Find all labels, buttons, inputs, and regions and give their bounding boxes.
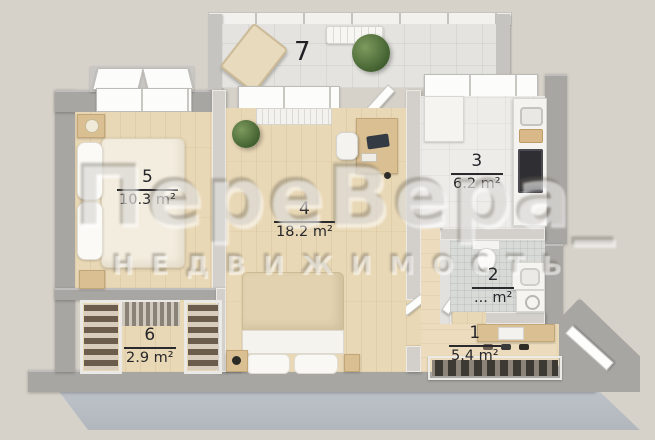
room-4-number: 4 [299,200,310,220]
corridor-floor [421,228,440,324]
monitor [366,134,390,150]
room-1-label: 1 5.4 m² [449,324,501,364]
shoes-pair [501,344,511,350]
wall-right-upper [545,74,567,244]
bed-pillow [246,354,290,374]
room-1-area: 5.4 m² [449,345,501,365]
room-4-label: 4 18.2 m² [274,200,335,240]
nightstand [79,270,105,289]
room-5-number: 5 [142,168,153,188]
radiator [256,108,332,125]
deck-chair [219,22,288,93]
room-7-number: 7 [294,38,311,68]
nightstand [344,354,360,372]
closet-shelves [184,300,222,374]
room-5-bedroom-floor: 5 10.3 m² [75,112,212,288]
room-5-label: 5 10.3 m² [117,168,178,208]
washing-machine [516,290,545,312]
room-3-number: 3 [471,152,482,172]
nightstand [77,114,105,138]
floor-plan-render: 7 5 10.3 m² [0,0,655,440]
bed-duvet [242,272,344,332]
desk [356,118,398,174]
partition-kitchen-bathroom [440,228,545,240]
keyboard [361,153,377,162]
room-3-kitchen-floor: 3 6.2 m² [421,96,545,228]
room-3-label: 3 6.2 m² [451,152,503,192]
table-lamp [85,119,99,133]
shoes-pair [519,344,529,350]
room-2-number: 2 [488,266,499,286]
room-1-hall-floor: 1 5.4 m² [421,324,556,372]
bed-double [242,272,342,372]
room-4-living-floor: 4 18.2 m² [226,108,406,372]
room-1-number: 1 [469,324,480,344]
room-2-area: ... m² [472,287,514,307]
kitchen-sink [520,107,543,126]
kitchen-window [424,74,538,98]
desk-chair [336,132,358,160]
room-6-area: 2.9 m² [124,347,176,367]
partition-bedroom-living [212,90,226,290]
room-6-wardrobe-floor: 6 2.9 m² [80,300,216,372]
room-2-bathroom-floor: 2 ... m² [450,240,545,312]
floor-lamp [384,172,391,179]
balcony-wall-left [208,14,222,90]
room-6-label: 6 2.9 m² [124,326,176,366]
room-5-area: 10.3 m² [117,189,178,209]
clothes-rail [122,300,180,326]
storage-box [498,327,524,340]
bathroom-sink [520,268,540,286]
wall-left [55,90,75,372]
bedroom-bay-window-2 [142,68,193,90]
closet-shelves [80,300,122,374]
room-3-area: 6.2 m² [451,173,503,193]
bed-pillow [294,354,338,374]
balcony-plant [352,34,390,72]
foundation-slab [40,390,640,430]
room-6-number: 6 [144,326,155,346]
pet-bowl [232,356,241,365]
bed-pillow [77,202,103,260]
partition-living-right-upper [406,90,421,300]
living-room-window [238,86,340,110]
partition-bedroom-wardrobe [55,288,216,300]
kitchen-counter [513,98,547,226]
bedroom-bay-window [92,68,143,90]
bathroom-vanity [512,262,545,290]
room-7-label: 7 [294,38,311,68]
cutting-board [519,129,543,143]
partition-living-right-lower [406,346,421,372]
fridge [424,96,464,142]
room-2-label: 2 ... m² [472,266,514,306]
entrance-landing-wall [556,298,640,392]
bed-blanket [242,330,344,354]
bedroom-window [96,88,192,112]
bed-pillow [77,142,103,200]
room-4-area: 18.2 m² [274,221,335,241]
stove-oven [518,149,543,193]
pet-stool [226,350,248,372]
wall-right-lower [545,244,563,324]
living-plant [232,120,260,148]
washer-drum [525,295,540,310]
